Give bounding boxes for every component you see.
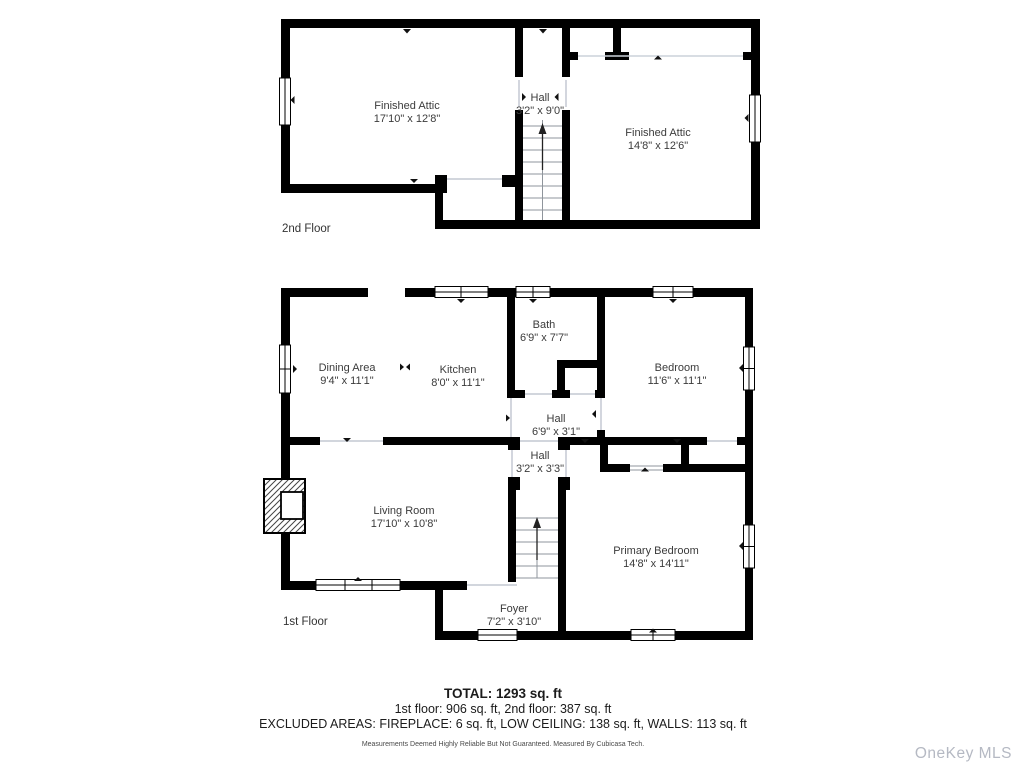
room-name: Primary Bedroom (613, 545, 699, 558)
area-summary: TOTAL: 1293 sq. ft 1st floor: 906 sq. ft… (0, 686, 1006, 749)
floor-areas: 1st floor: 906 sq. ft, 2nd floor: 387 sq… (0, 702, 1006, 717)
room-label-hall-1f-lower: Hall 3'2" x 3'3" (516, 450, 564, 476)
room-label-kitchen: Kitchen 8'0" x 11'1" (431, 364, 484, 390)
room-name: Kitchen (431, 364, 484, 377)
room-dimensions: 17'10" x 10'8" (371, 518, 437, 531)
room-dimensions: 8'0" x 11'1" (431, 377, 484, 390)
room-dimensions: 14'8" x 12'6" (625, 140, 690, 153)
staircase (523, 120, 562, 220)
room-dimensions: 17'10" x 12'8" (374, 113, 440, 126)
room-name: Dining Area (319, 362, 376, 375)
openings (447, 56, 743, 179)
room-name: Foyer (487, 603, 541, 616)
room-dimensions: 7'2" x 3'10" (487, 616, 541, 629)
floor-plan-page: Finished Attic 17'10" x 12'8" Hall 3'2" … (0, 0, 1024, 768)
total-area: TOTAL: 1293 sq. ft (0, 686, 1006, 702)
room-label-hall-1f-upper: Hall 6'9" x 3'1" (532, 413, 580, 439)
room-name: Hall (516, 92, 564, 105)
floor-tag-1st: 1st Floor (283, 616, 328, 628)
excluded-areas: EXCLUDED AREAS: FIREPLACE: 6 sq. ft, LOW… (0, 717, 1006, 732)
room-label-bath: Bath 6'9" x 7'7" (520, 319, 568, 345)
staircase (516, 517, 558, 578)
walls (281, 19, 760, 229)
fireplace (264, 479, 305, 533)
room-name: Hall (532, 413, 580, 426)
onekey-mls-watermark: OneKey MLS (915, 745, 1012, 763)
room-label-dining-area: Dining Area 9'4" x 11'1" (319, 362, 376, 388)
room-dimensions: 11'6" x 11'1" (648, 375, 707, 388)
first-floor-plan (264, 287, 755, 641)
room-dimensions: 6'9" x 3'1" (532, 426, 580, 439)
room-label-living-room: Living Room 17'10" x 10'8" (371, 505, 437, 531)
room-label-foyer: Foyer 7'2" x 3'10" (487, 603, 541, 629)
room-label-finished-attic-right: Finished Attic 14'8" x 12'6" (625, 127, 690, 153)
room-dimensions: 6'9" x 7'7" (520, 332, 568, 345)
room-dimensions: 3'2" x 9'0" (516, 105, 564, 118)
room-dimensions: 3'2" x 3'3" (516, 463, 564, 476)
second-floor-plan (280, 19, 761, 229)
room-name: Bath (520, 319, 568, 332)
room-label-bedroom: Bedroom 11'6" x 11'1" (648, 362, 707, 388)
floor-tag-2nd: 2nd Floor (282, 223, 331, 235)
room-name: Finished Attic (374, 100, 440, 113)
room-label-finished-attic-left: Finished Attic 17'10" x 12'8" (374, 100, 440, 126)
room-name: Living Room (371, 505, 437, 518)
room-name: Hall (516, 450, 564, 463)
room-label-hall-2f: Hall 3'2" x 9'0" (516, 92, 564, 118)
room-dimensions: 14'8" x 14'11" (613, 558, 699, 571)
disclaimer: Measurements Deemed Highly Reliable But … (0, 740, 1006, 749)
room-name: Bedroom (648, 362, 707, 375)
room-label-primary-bedroom: Primary Bedroom 14'8" x 14'11" (613, 545, 699, 571)
stairs-up-arrow (539, 123, 547, 170)
room-dimensions: 9'4" x 11'1" (319, 375, 376, 388)
room-name: Finished Attic (625, 127, 690, 140)
floor-plan-drawing (0, 0, 1024, 768)
